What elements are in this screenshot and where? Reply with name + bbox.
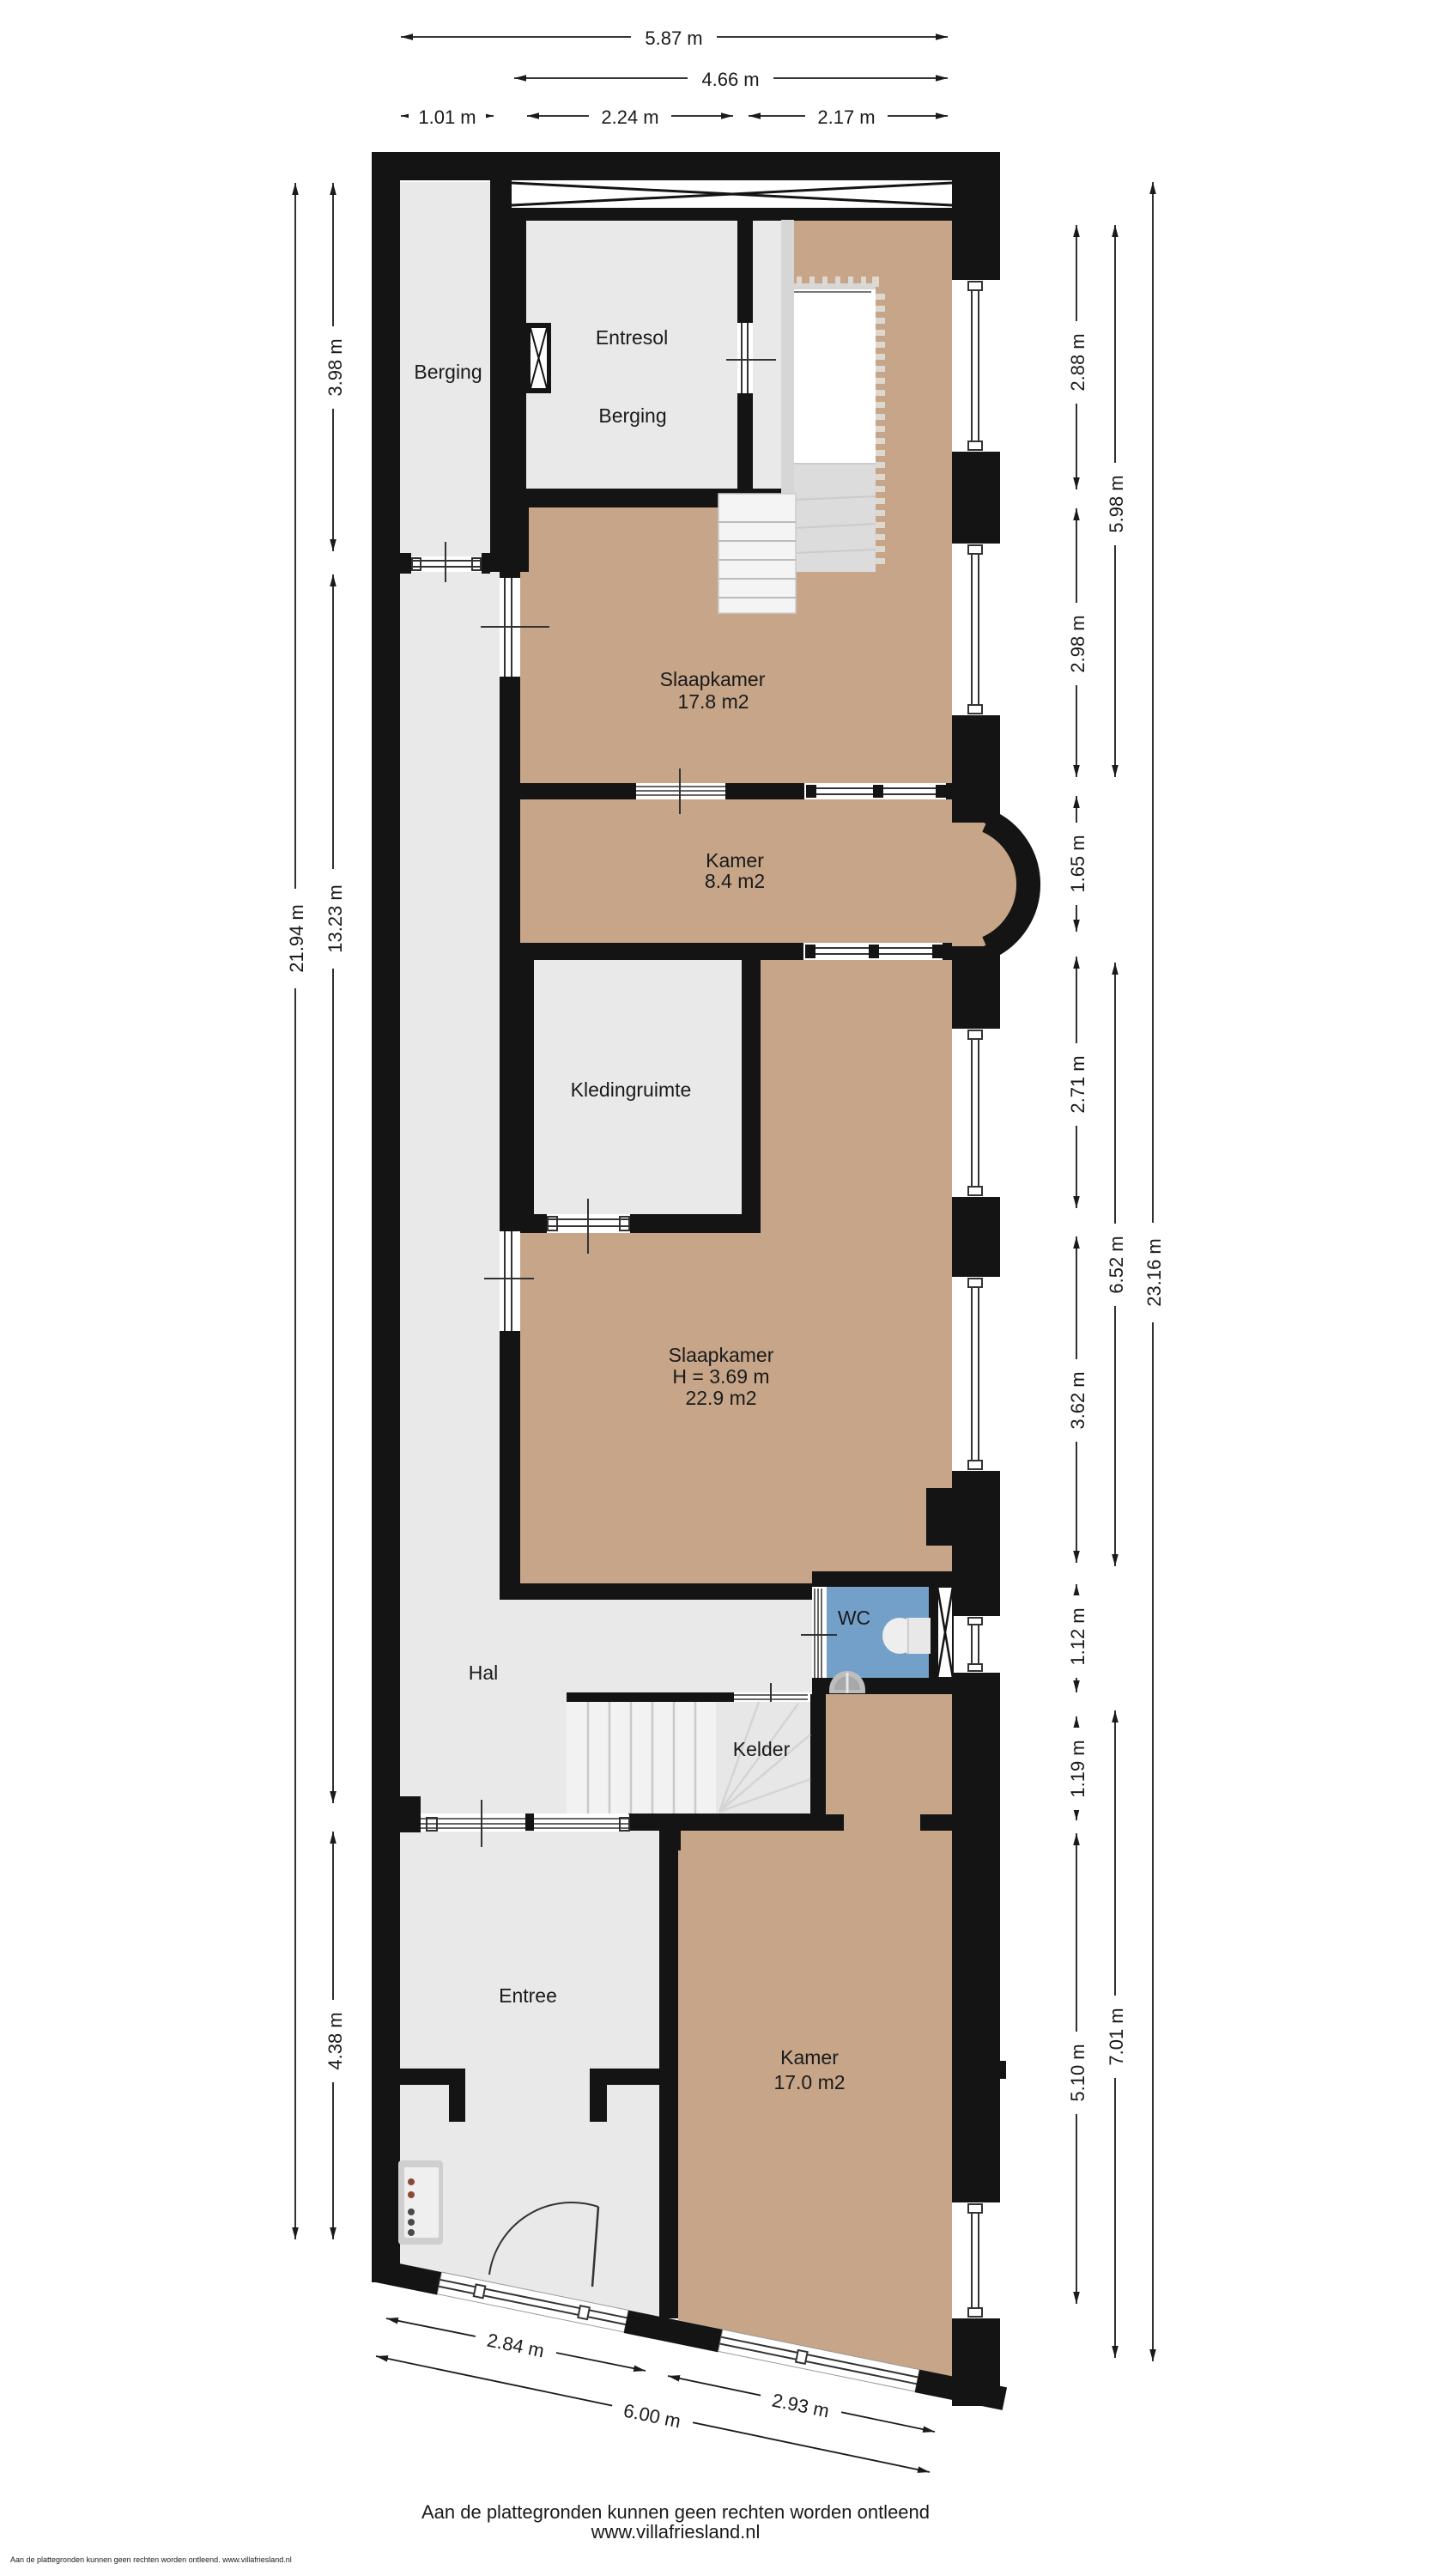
svg-text:www.villafriesland.nl: www.villafriesland.nl [591, 2521, 761, 2543]
svg-text:Hal: Hal [469, 1662, 499, 1684]
svg-text:Berging: Berging [598, 404, 666, 427]
svg-text:5.98 m: 5.98 m [1106, 475, 1127, 532]
svg-text:Entree: Entree [499, 1984, 557, 2007]
svg-text:6.52 m: 6.52 m [1106, 1236, 1127, 1293]
svg-text:Kamer: Kamer [780, 2046, 839, 2069]
svg-text:22.9 m2: 22.9 m2 [685, 1387, 756, 1409]
svg-text:Aan de plattegronden kunnen ge: Aan de plattegronden kunnen geen rechten… [421, 2501, 930, 2523]
svg-text:Kledingruimte: Kledingruimte [571, 1078, 692, 1101]
svg-text:1.01 m: 1.01 m [418, 106, 476, 128]
svg-text:Kamer: Kamer [706, 849, 764, 872]
svg-text:1.65 m: 1.65 m [1067, 835, 1088, 892]
svg-text:1.19 m: 1.19 m [1067, 1740, 1088, 1797]
svg-text:3.98 m: 3.98 m [324, 338, 346, 396]
svg-text:Slaapkamer: Slaapkamer [660, 668, 766, 690]
svg-text:7.01 m: 7.01 m [1106, 2008, 1127, 2065]
svg-text:23.16 m: 23.16 m [1143, 1238, 1165, 1307]
svg-text:17.8 m2: 17.8 m2 [677, 690, 749, 713]
svg-text:3.62 m: 3.62 m [1067, 1371, 1088, 1429]
svg-text:8.4 m2: 8.4 m2 [705, 870, 765, 892]
svg-text:2.71 m: 2.71 m [1067, 1055, 1088, 1113]
svg-text:4.66 m: 4.66 m [701, 69, 759, 90]
svg-text:Aan de plattegronden kunnen ge: Aan de plattegronden kunnen geen rechten… [10, 2555, 292, 2564]
svg-text:17.0 m2: 17.0 m2 [773, 2071, 845, 2093]
svg-text:5.87 m: 5.87 m [645, 27, 702, 49]
svg-text:2.88 m: 2.88 m [1067, 333, 1088, 391]
svg-text:13.23 m: 13.23 m [324, 884, 346, 953]
svg-text:2.98 m: 2.98 m [1067, 615, 1088, 672]
svg-text:WC: WC [838, 1607, 870, 1629]
svg-text:21.94 m: 21.94 m [286, 904, 307, 973]
svg-text:2.24 m: 2.24 m [601, 106, 658, 128]
svg-text:H = 3.69 m: H = 3.69 m [672, 1365, 769, 1388]
svg-text:Berging: Berging [414, 361, 482, 383]
svg-text:2.17 m: 2.17 m [817, 106, 875, 128]
svg-text:Slaapkamer: Slaapkamer [669, 1344, 774, 1366]
svg-text:4.38 m: 4.38 m [324, 2012, 346, 2069]
svg-text:Kelder: Kelder [733, 1738, 791, 1760]
svg-text:5.10 m: 5.10 m [1067, 2044, 1088, 2101]
svg-text:Entresol: Entresol [596, 326, 668, 349]
svg-text:1.12 m: 1.12 m [1067, 1607, 1088, 1665]
